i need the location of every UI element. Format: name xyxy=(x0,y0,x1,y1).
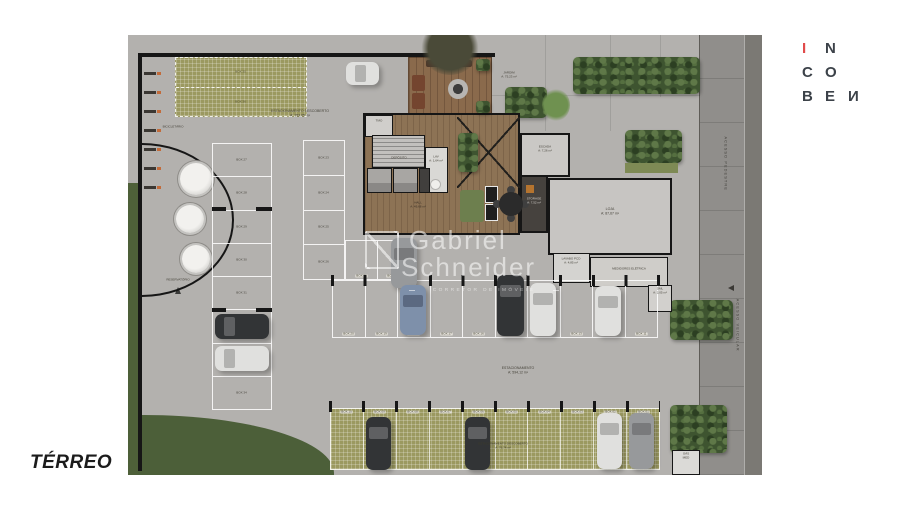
parked-car xyxy=(366,417,391,470)
label-line: A: 7,52 m² xyxy=(527,201,542,205)
parking-stall: BOX 25 xyxy=(304,210,344,245)
estacionamento-label: ESTACIONAMENTO A: 594,12 m² xyxy=(502,366,535,375)
indoor-planter xyxy=(458,133,478,172)
stall-label: BOX 23 xyxy=(319,156,330,159)
jardim-label: JARDIM A: 75,23 m² xyxy=(501,71,517,79)
label-line: MED xyxy=(683,456,690,460)
parked-car xyxy=(346,62,379,85)
wall-stub xyxy=(256,207,272,211)
parking-stall: BOX 26 xyxy=(304,244,344,279)
label-line: ACESSO PEDESTRE xyxy=(724,137,728,191)
parking-stall: BOX 28 xyxy=(213,176,271,209)
label-line: A: 594,12 m² xyxy=(502,371,535,376)
label-line: A: 49,68 m² xyxy=(410,205,426,209)
parking-stall: BOX 35 xyxy=(176,58,306,87)
stall-label: BOX 34 xyxy=(237,391,248,394)
watermark-tagline: CORRETOR DE IMÓVEIS xyxy=(409,287,559,293)
label-line: A: 2,05 m² xyxy=(653,291,667,295)
parking-stall: BOX 05 xyxy=(495,409,528,469)
stall-label: BOX 27 xyxy=(237,159,248,162)
stall-label: BOX 17 xyxy=(440,333,453,336)
label-line: RESERVATÓRIO xyxy=(166,278,189,282)
parking-stall: BOX 08 xyxy=(396,409,429,469)
site-wall-left xyxy=(138,53,142,471)
stall-label: BOX 26 xyxy=(319,261,330,264)
parking-stall: BOX 34 xyxy=(213,376,271,409)
storage-label: STORAGE A: 7,52 m² xyxy=(527,197,542,205)
elevator xyxy=(393,168,418,193)
parking-stall: BOX 04 xyxy=(527,409,560,469)
parking-stall: BOX 07 xyxy=(429,409,462,469)
logo-letter: N xyxy=(825,40,848,57)
escada-label: ESCADA A: 7,26 m² xyxy=(538,145,552,153)
logo-row: IN xyxy=(802,40,871,64)
stairs xyxy=(372,135,425,168)
acesso-veicular-label: ACESSO VEICULAR xyxy=(736,299,740,338)
deck-lounger xyxy=(412,75,425,91)
reservatorio-label: RESERVATÓRIO xyxy=(166,278,189,282)
logo-letter: E xyxy=(825,88,848,105)
dml-label: DML A: 2,05 m² xyxy=(653,287,667,295)
tmo-label: TMO xyxy=(376,119,383,123)
parked-car xyxy=(215,314,269,339)
tagline-rule xyxy=(409,290,415,291)
water-tank xyxy=(180,163,212,195)
label-line: A: 7,26 m² xyxy=(538,149,552,153)
screenshot-canvas: BICICLETÁRIO BOX 35 BOX 36 ESTACIONAMENT… xyxy=(0,0,900,505)
logo-row: BEИ xyxy=(802,88,871,112)
water-tank xyxy=(176,205,204,233)
stall-label: BOX 24 xyxy=(319,191,330,194)
parking-stall: BOX 31 xyxy=(213,276,271,309)
stall-label: BOX 35 xyxy=(236,71,247,74)
lawn-bottom-left xyxy=(138,415,334,475)
lawn-strip-left xyxy=(128,183,138,475)
wall-stub xyxy=(212,308,226,312)
watermark: Gabriel Schneider CORRETOR DE IMÓVEIS xyxy=(363,225,583,305)
label-line: ACESSO VEICULAR xyxy=(736,299,740,352)
parked-car xyxy=(215,346,269,371)
label-line: A: 1,64 m² xyxy=(429,159,443,163)
logo-letter: I xyxy=(802,40,825,57)
stall-label: BOX 11 xyxy=(635,333,647,336)
watermark-house-icon xyxy=(365,231,399,269)
parking-stall: BOX 30 xyxy=(213,243,271,276)
parked-car xyxy=(597,413,622,469)
stall-label: BOX 16 xyxy=(472,333,485,336)
open-parking-top-label: ESTACIONAMENTO DESCOBERTO A: 153,05 m² xyxy=(271,109,329,118)
stall-label: BOX 13 xyxy=(570,333,583,336)
deposito-label: DEPÓSITO xyxy=(391,156,406,160)
stall-label: BOX 30 xyxy=(237,258,248,261)
label-line: MEDIDORES ELÉTRICA xyxy=(612,267,646,271)
hedge-bottom-right xyxy=(670,405,727,453)
parked-car xyxy=(595,286,621,336)
stall-label: BOX 36 xyxy=(236,100,247,103)
vending-machine xyxy=(485,204,498,221)
acesso-pedestre-label: ACESSO PEDESTRE xyxy=(724,137,728,170)
shrub xyxy=(542,89,570,121)
bicicletario-label: BICICLETÁRIO xyxy=(163,125,184,129)
parked-car xyxy=(629,413,654,469)
parking-stall: BOX 24 xyxy=(304,175,344,210)
round-table xyxy=(499,192,523,216)
logo-letter: C xyxy=(802,64,825,81)
parking-grass-boxes: BOX 35 BOX 36 xyxy=(175,57,307,117)
loja-label: LOJA A: 87,67 m² xyxy=(601,207,619,216)
open-parking-bottom-label: ESTACIONAMENTO DESCOBERTO A: 76,74 m² xyxy=(478,442,528,450)
toilet-fixture xyxy=(430,179,441,190)
street-road xyxy=(744,35,762,475)
tagline-text: CORRETOR DE IMÓVEIS xyxy=(433,288,535,293)
hall-label: HALL A: 49,68 m² xyxy=(410,201,426,209)
parking-stall: BOX 10 xyxy=(331,409,363,469)
access-arrow-icon xyxy=(728,285,734,291)
groundcover-strip xyxy=(625,163,678,173)
parking-stall: BOX 03 xyxy=(560,409,593,469)
lav-label: LAV A: 1,64 m² xyxy=(429,155,443,163)
medidores-label: MEDIDORES ELÉTRICA xyxy=(612,267,646,271)
parking-stall: BOX 27 xyxy=(213,144,271,176)
elevator xyxy=(367,168,392,193)
label-line: BICICLETÁRIO xyxy=(163,125,184,129)
label-line: DEPÓSITO xyxy=(391,156,406,160)
parking-side-column: BOX 23 BOX 24 BOX 25 BOX 26 xyxy=(303,140,345,280)
shaft-duct xyxy=(419,168,430,193)
parking-stall: BOX 23 xyxy=(304,141,344,175)
stall-label: BOX 31 xyxy=(237,292,248,295)
lounge-sofa xyxy=(460,190,484,222)
hedge-top xyxy=(573,57,700,94)
watermark-last-name: Schneider xyxy=(401,252,536,283)
tagline-rule xyxy=(553,290,559,291)
stall-label: BOX 19 xyxy=(375,333,388,336)
gas-label: GÁS MED xyxy=(683,452,690,460)
stall-label: BOX 29 xyxy=(237,225,248,228)
parking-stall: BOX 29 xyxy=(213,210,271,243)
parking-stall: BOX 20 xyxy=(333,281,365,337)
label-line: A: 75,23 m² xyxy=(501,75,517,79)
label-line: TMO xyxy=(376,119,383,123)
deck-planter xyxy=(476,101,490,113)
fire-pit xyxy=(448,79,468,99)
floor-plan: BICICLETÁRIO BOX 35 BOX 36 ESTACIONAMENT… xyxy=(128,35,762,475)
wall-stub xyxy=(256,308,272,312)
logo-row: CO xyxy=(802,64,871,88)
logo-letter: И xyxy=(848,88,871,105)
label-line: A: 87,67 m² xyxy=(601,212,619,217)
stall-label: BOX 28 xyxy=(237,192,248,195)
incoben-logo: IN CO BEИ xyxy=(802,40,871,112)
logo-letter: B xyxy=(802,88,825,105)
hedge-right xyxy=(625,130,682,163)
stall-label: BOX 25 xyxy=(319,226,330,229)
deck-planter xyxy=(476,59,490,71)
wall-stub xyxy=(212,207,226,211)
pillar-row xyxy=(329,401,660,412)
stall-label: BOX 20 xyxy=(342,333,355,336)
floor-title: TÉRREO xyxy=(30,452,112,474)
label-line: A: 153,05 m² xyxy=(271,114,329,119)
water-tank xyxy=(182,245,210,273)
hedge-loja-side xyxy=(670,300,733,340)
storage-crate xyxy=(526,185,534,193)
deck-lounger xyxy=(412,93,425,109)
room-escada xyxy=(520,133,570,177)
vending-machine xyxy=(485,186,498,203)
logo-letter: O xyxy=(825,64,848,81)
label-line: A: 76,74 m² xyxy=(478,446,528,450)
